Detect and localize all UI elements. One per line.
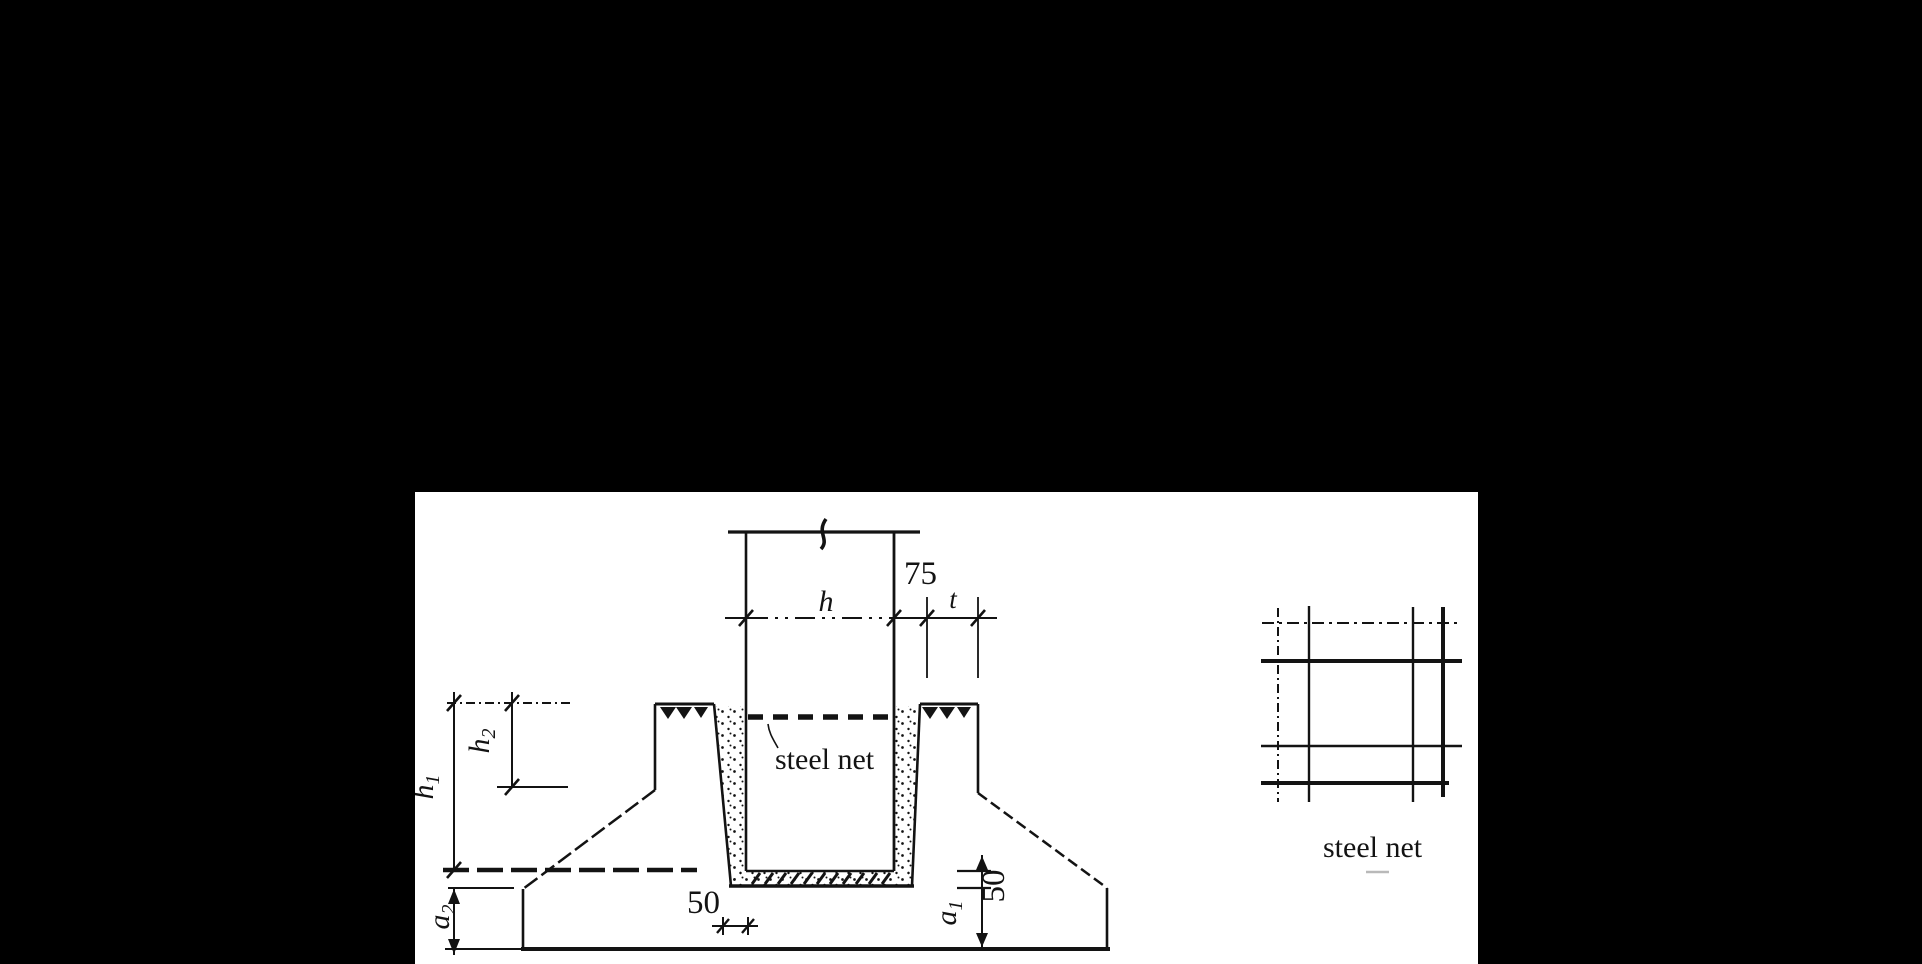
dim-label-h: h	[819, 585, 834, 618]
figure-drawing: 75 h t	[415, 492, 1478, 964]
steel-net-label-plan: steel net	[1323, 831, 1423, 864]
dim-label-75: 75	[904, 556, 937, 592]
dim-label-50-bottom: 50	[976, 870, 1012, 903]
dim-label-50-wall: 50	[687, 885, 720, 921]
black-backdrop: 75 h t	[0, 0, 1922, 964]
scan-page: 75 h t	[415, 492, 1478, 964]
steel-net-label-section: steel net	[775, 743, 875, 776]
page-background	[415, 492, 1478, 964]
